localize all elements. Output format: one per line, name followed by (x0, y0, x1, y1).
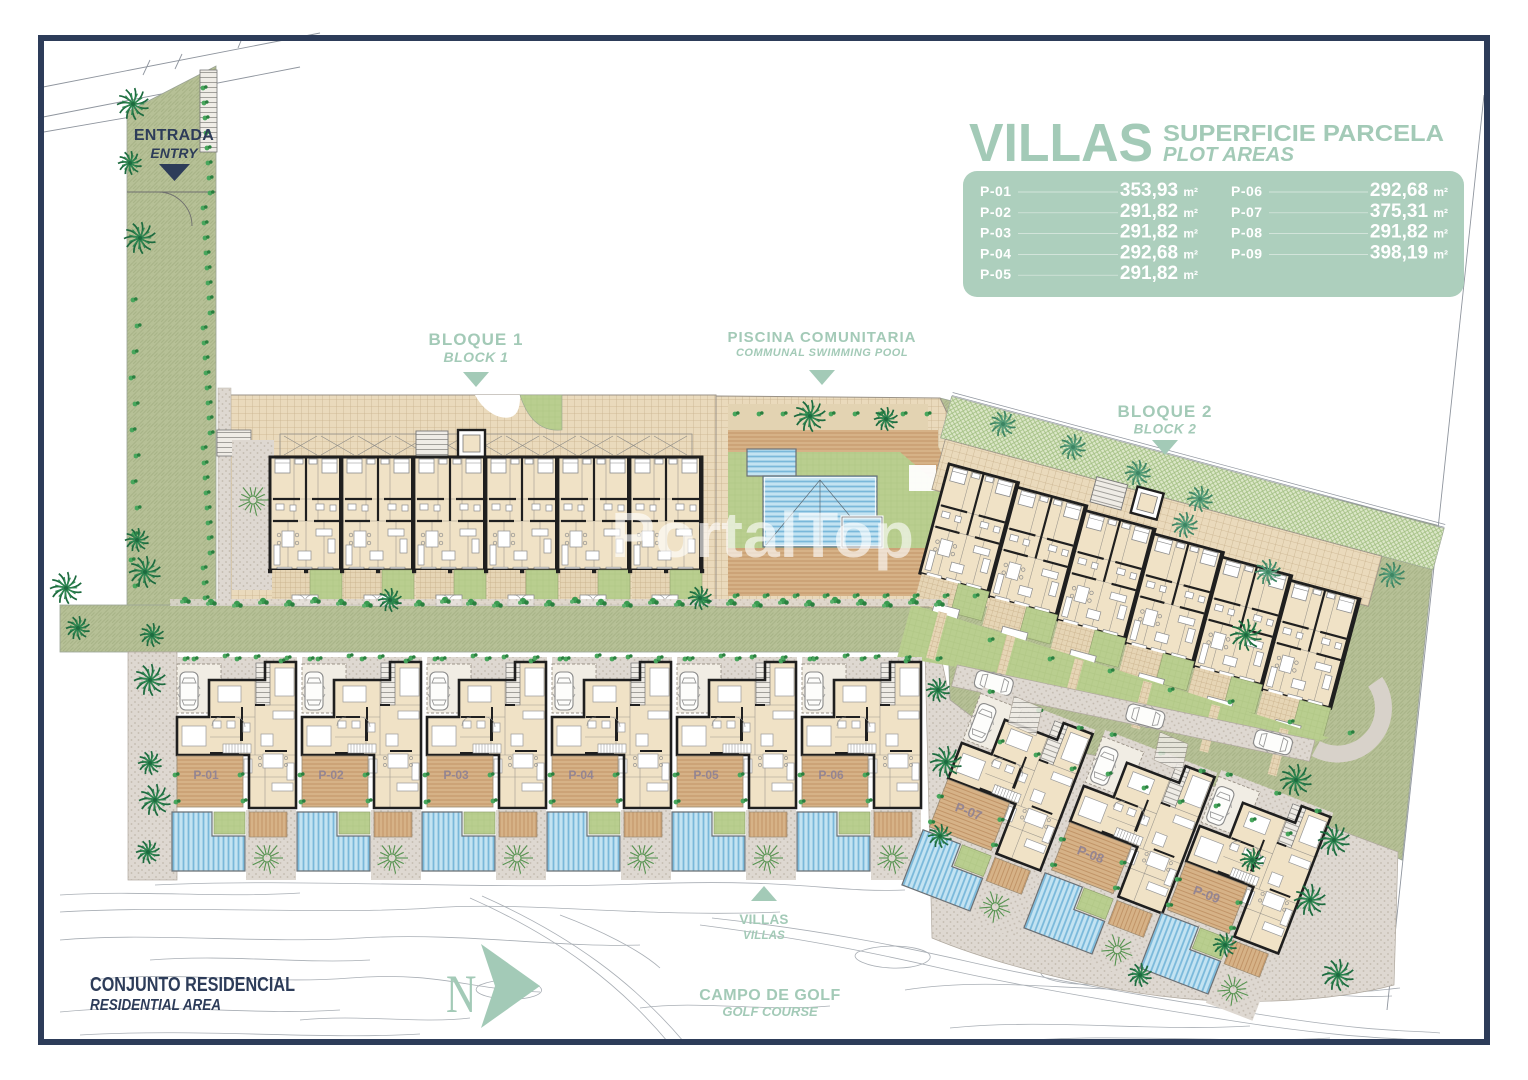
svg-text:N: N (446, 965, 476, 1024)
svg-text:COMMUNAL SWIMMING POOL: COMMUNAL SWIMMING POOL (736, 347, 908, 359)
svg-text:GOLF COURSE: GOLF COURSE (722, 1004, 818, 1019)
svg-text:P-03: P-03 (980, 225, 1012, 241)
svg-text:P-06: P-06 (1231, 183, 1263, 199)
svg-text:P-04: P-04 (568, 768, 594, 782)
svg-text:RESIDENTIAL AREA: RESIDENTIAL AREA (90, 997, 221, 1014)
svg-text:CONJUNTO RESIDENCIAL: CONJUNTO RESIDENCIAL (90, 974, 295, 996)
svg-text:VILLAS: VILLAS (969, 113, 1153, 173)
svg-text:VILLAS: VILLAS (739, 912, 788, 927)
svg-text:ENTRADA: ENTRADA (134, 127, 214, 144)
svg-text:P-07: P-07 (1231, 204, 1263, 220)
svg-text:P-02: P-02 (980, 204, 1012, 220)
svg-text:P-08: P-08 (1231, 225, 1263, 241)
svg-text:PISCINA COMUNITARIA: PISCINA COMUNITARIA (728, 329, 917, 346)
svg-text:ENTRY: ENTRY (150, 145, 199, 161)
svg-text:P-09: P-09 (1231, 245, 1263, 261)
svg-text:P-05: P-05 (693, 768, 719, 782)
svg-text:PortalTop: PortalTop (611, 499, 914, 571)
svg-text:CAMPO DE GOLF: CAMPO DE GOLF (699, 987, 841, 1004)
svg-text:P-03: P-03 (443, 768, 469, 782)
svg-text:PLOT AREAS: PLOT AREAS (1163, 144, 1295, 166)
svg-text:P-06: P-06 (818, 768, 844, 782)
svg-text:P-02: P-02 (318, 768, 344, 782)
svg-text:P-01: P-01 (980, 183, 1012, 199)
svg-text:VILLAS: VILLAS (743, 930, 785, 942)
svg-text:BLOCK 2: BLOCK 2 (1134, 422, 1197, 437)
svg-text:SUPERFICIE PARCELA: SUPERFICIE PARCELA (1163, 120, 1444, 146)
svg-text:BLOCK 1: BLOCK 1 (444, 349, 509, 365)
svg-text:BLOQUE 1: BLOQUE 1 (429, 330, 524, 349)
svg-text:BLOQUE 2: BLOQUE 2 (1118, 402, 1213, 421)
svg-text:P-01: P-01 (193, 768, 219, 782)
svg-text:P-05: P-05 (980, 266, 1012, 282)
svg-text:P-04: P-04 (980, 245, 1012, 261)
